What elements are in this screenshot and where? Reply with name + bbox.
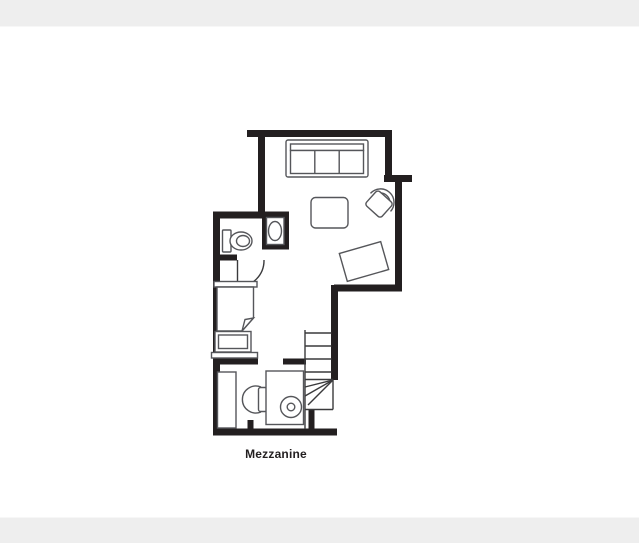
side-table-icon [339,242,388,282]
floor-plan-page: Mezzanine [0,0,639,543]
stool-icon [281,397,302,418]
floor-plan [0,0,639,543]
armchair-icon [362,183,399,220]
wardrobe-icon [218,372,237,428]
sofa-icon [286,140,368,177]
toilet-icon [223,230,253,252]
floor-label: Mezzanine [216,447,336,461]
desk-chair-icon [242,386,267,413]
bed-icon [214,282,257,332]
coffee-table-icon [311,198,348,229]
chest-of-drawers-icon [215,332,251,353]
shelf-icon [212,353,258,359]
sink-icon [267,218,285,245]
